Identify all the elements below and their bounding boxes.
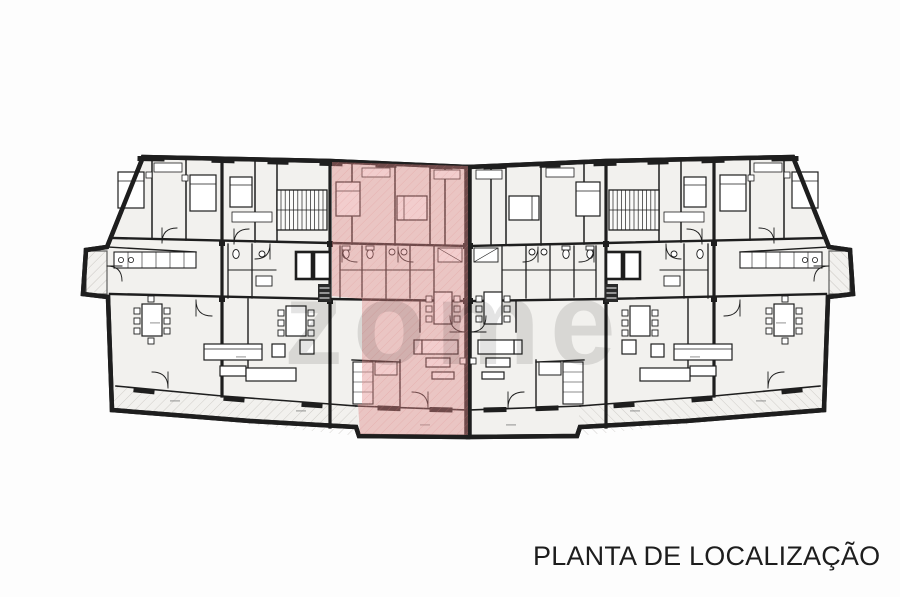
floor-plan-drawing: zome xyxy=(0,0,900,597)
scanned-plan-page: zome PLANTA DE LOCALIZAÇÃO xyxy=(0,0,900,597)
plan-title: PLANTA DE LOCALIZAÇÃO xyxy=(533,541,880,571)
watermark-text: zome xyxy=(284,258,626,390)
